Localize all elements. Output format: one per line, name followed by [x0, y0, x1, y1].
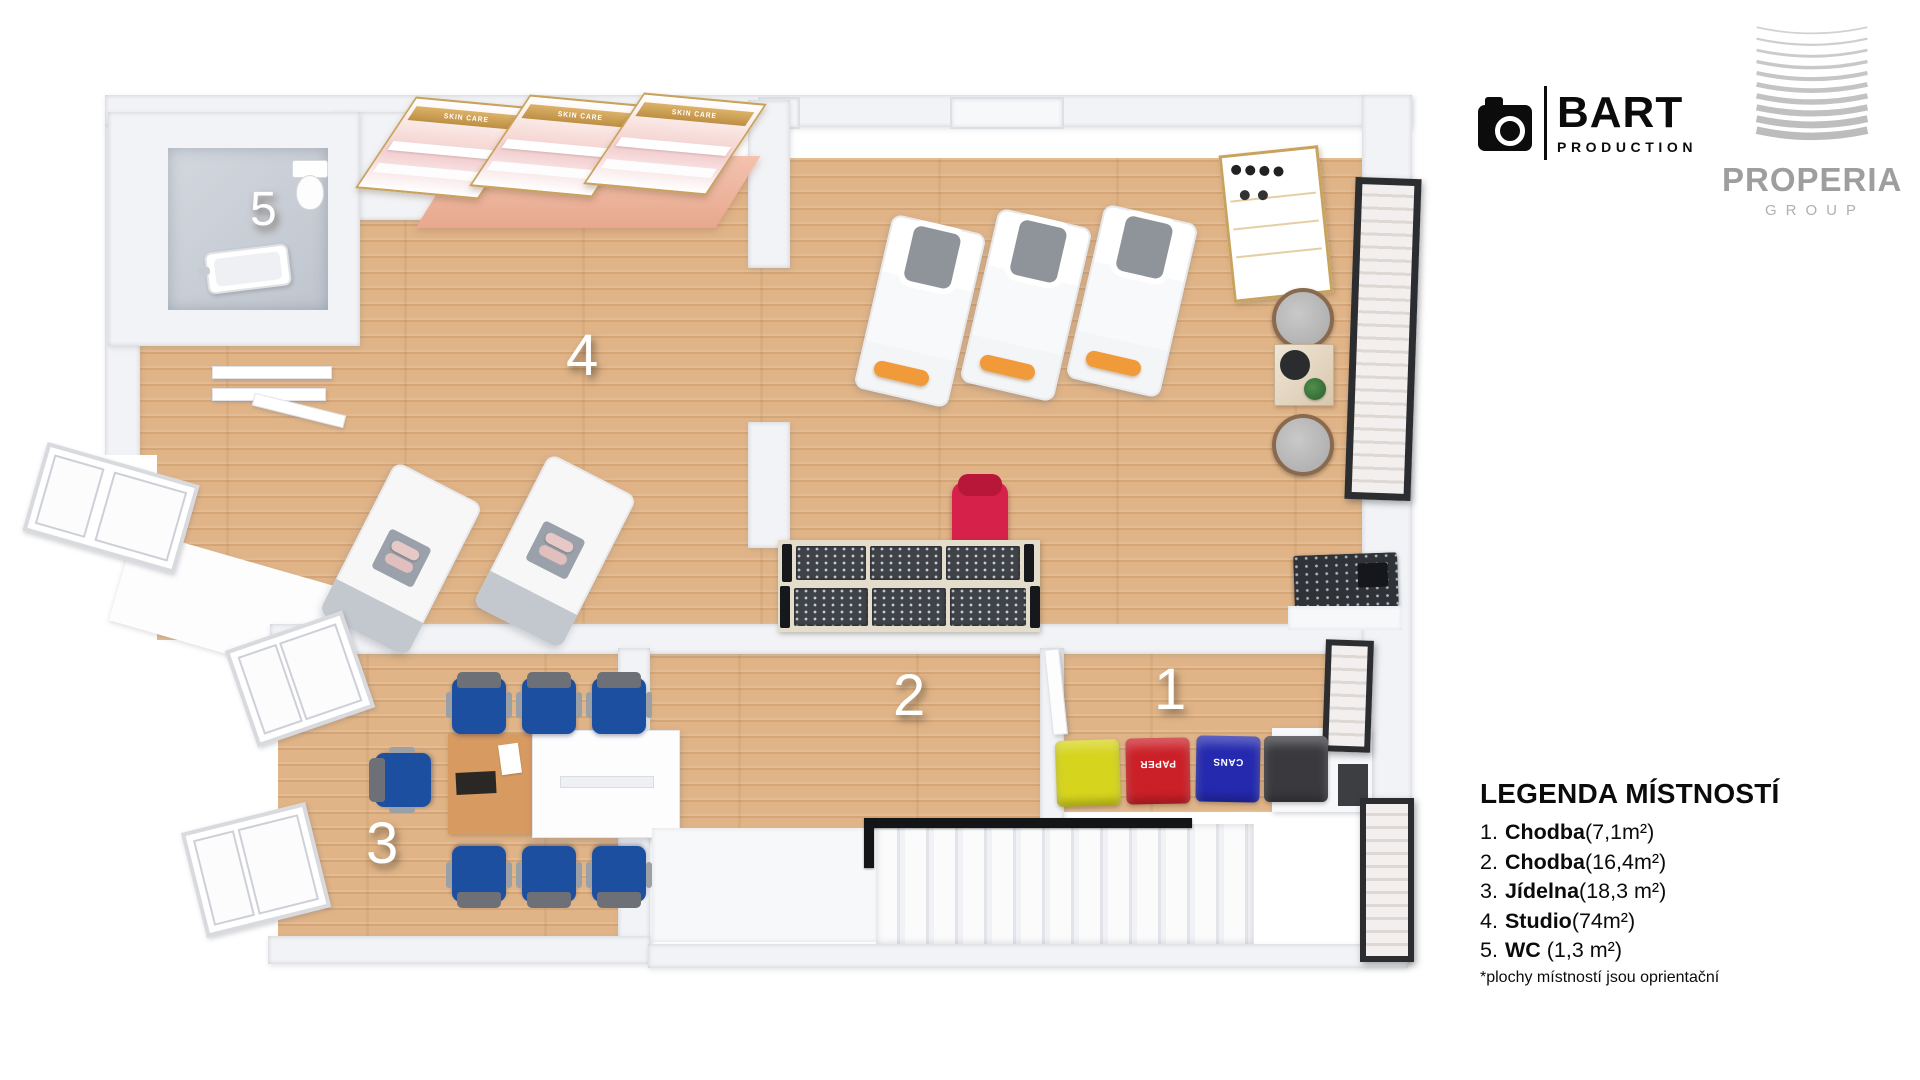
legend-title: LEGENDA MÍSTNOSTÍ: [1480, 778, 1910, 810]
recycle-bin-dark: [1264, 736, 1328, 802]
dining-chair-head: [375, 753, 431, 807]
dj-console-stand: [1288, 606, 1402, 630]
legend-item-4: 4.Studio(74m²): [1480, 907, 1910, 937]
cans-bin-label: CANS: [1196, 755, 1260, 767]
stair-handrail-post: [864, 818, 874, 868]
legend-item-area: (7,1m²): [1585, 820, 1654, 844]
laptop-icon: [455, 771, 496, 795]
tray-icon: [1280, 350, 1310, 380]
table-power-strip: [560, 776, 654, 788]
console-cap: [1030, 586, 1040, 628]
divider-wall-upper: [748, 100, 790, 268]
skincare-sign-label: SKIN CARE: [672, 108, 718, 119]
stool-top: [1272, 288, 1334, 350]
console-cap: [1024, 544, 1034, 582]
paper-sheet: [498, 743, 522, 775]
properia-stripes-icon: [1746, 14, 1878, 154]
mixer-module: [870, 546, 942, 580]
room-number-1: 1: [1154, 656, 1186, 723]
recycle-bin-yellow: [1055, 739, 1121, 807]
legend-item-1: 1.Chodba(7,1m²): [1480, 818, 1910, 848]
bottom-wall-stairs: [648, 944, 1408, 968]
legend-item-area: (74m²): [1572, 909, 1635, 933]
mixer-module: [946, 546, 1020, 580]
stool-bottom: [1272, 414, 1334, 476]
bottom-wall-dining: [268, 936, 650, 964]
properia-group-logo: PROPERIA GROUP: [1722, 14, 1902, 219]
legend-item-2: 2.Chodba(16,4m²): [1480, 848, 1910, 878]
console-cap: [780, 586, 790, 628]
stair-landing: [652, 828, 878, 942]
room-legend: LEGENDA MÍSTNOSTÍ 1.Chodba(7,1m²) 2.Chod…: [1480, 778, 1910, 987]
divider-wall-lower: [748, 422, 790, 548]
legend-footnote: *plochy místností jsou oprientační: [1480, 969, 1910, 987]
mixer-module: [796, 546, 866, 580]
dj-console: [1293, 552, 1399, 610]
bart-name: BART: [1557, 91, 1697, 135]
legend-item-number: 3.: [1480, 879, 1498, 903]
top-window-wide: [950, 97, 1064, 129]
properia-name: PROPERIA: [1722, 161, 1902, 199]
logo-divider: [1544, 86, 1547, 160]
plant-icon: [1304, 378, 1326, 400]
bart-logo-text: BART PRODUCTION: [1557, 91, 1697, 155]
dining-chair: [522, 846, 576, 902]
dining-chair: [592, 846, 646, 902]
floor-plan-page: SKIN CARE SKIN CARE SKIN CARE: [0, 0, 1920, 1080]
legend-item-area: (1,3 m²): [1541, 938, 1622, 962]
skincare-sign-label: SKIN CARE: [558, 110, 604, 121]
legend-item-area: (16,4m²): [1585, 850, 1666, 874]
legend-item-area: (18,3 m²): [1579, 879, 1666, 903]
legend-item-name: Jídelna: [1505, 879, 1579, 903]
skincare-sign-label: SKIN CARE: [444, 112, 490, 123]
staircase: [876, 824, 1254, 944]
legend-item-number: 5.: [1480, 938, 1498, 962]
bottom-right-window: [1360, 798, 1414, 962]
mixer-module: [950, 588, 1026, 626]
mixer-module: [872, 588, 946, 626]
cosmetics-shelf: [1219, 145, 1334, 303]
room-number-5: 5: [250, 182, 277, 237]
hall2-floor: [650, 640, 1042, 832]
room-number-2: 2: [893, 662, 925, 729]
bart-subtitle: PRODUCTION: [1557, 139, 1697, 155]
legend-item-name: Chodba: [1505, 820, 1585, 844]
dining-chair: [522, 678, 576, 734]
recycle-bin-paper: PAPER: [1125, 737, 1190, 804]
skincare-sign: SKIN CARE: [635, 102, 754, 126]
mixer-module: [794, 588, 868, 626]
towel-rolls: [543, 531, 575, 554]
glass-entrance-door: [1344, 177, 1421, 501]
recycle-bin-cans: CANS: [1195, 735, 1260, 802]
legend-item-number: 4.: [1480, 909, 1498, 933]
inner-dark-door: [1322, 639, 1374, 753]
wall-shelf-1: [212, 366, 332, 379]
dining-chair: [452, 678, 506, 734]
camera-icon: [1478, 105, 1532, 151]
legend-item-name: WC: [1505, 938, 1541, 962]
legend-item-3: 3.Jídelna(18,3 m²): [1480, 877, 1910, 907]
properia-subtitle: GROUP: [1728, 202, 1902, 219]
towel-rolls: [389, 539, 421, 562]
paper-bin-label: PAPER: [1126, 757, 1190, 769]
room-number-4: 4: [566, 322, 598, 389]
legend-item-name: Chodba: [1505, 850, 1585, 874]
legend-item-number: 2.: [1480, 850, 1498, 874]
console-cap: [782, 544, 792, 582]
room-number-3: 3: [366, 810, 398, 877]
legend-item-5: 5.WC (1,3 m²): [1480, 936, 1910, 966]
legend-item-number: 1.: [1480, 820, 1498, 844]
dining-chair: [592, 678, 646, 734]
legend-item-name: Studio: [1505, 909, 1572, 933]
toilet-icon: [292, 160, 326, 210]
dining-chair: [452, 846, 506, 902]
legend-items: 1.Chodba(7,1m²) 2.Chodba(16,4m²) 3.Jídel…: [1480, 818, 1910, 966]
bart-production-logo: BART PRODUCTION: [1478, 86, 1697, 160]
stair-handrail: [870, 818, 1192, 828]
cosmetic-bottles: [1231, 164, 1242, 175]
